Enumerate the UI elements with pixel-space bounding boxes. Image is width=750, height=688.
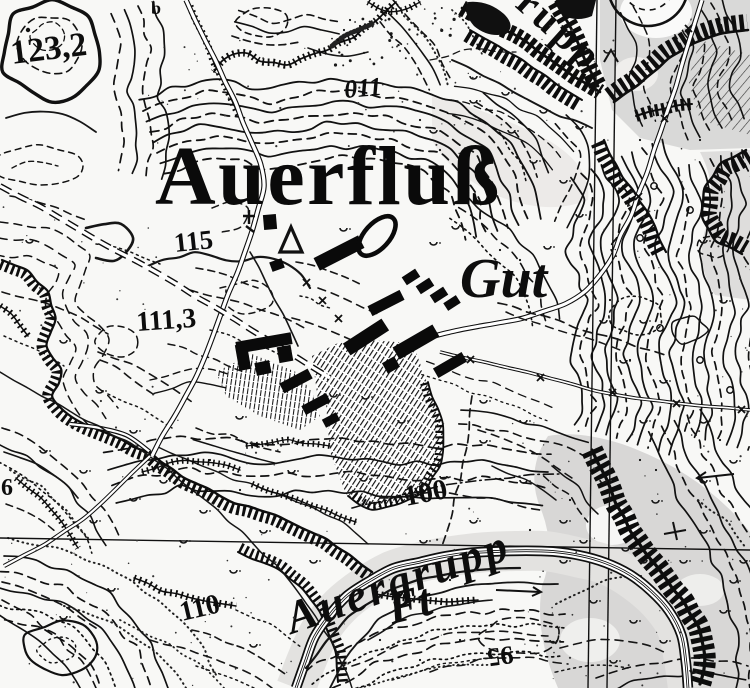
- svg-text:Auerfluß: Auerfluß: [155, 130, 502, 223]
- svg-text:115: 115: [172, 224, 214, 258]
- svg-text:011: 011: [343, 72, 383, 104]
- svg-text:111,3: 111,3: [135, 303, 197, 338]
- svg-text:Gut: Gut: [460, 248, 549, 310]
- svg-text:95: 95: [485, 640, 515, 672]
- svg-text:6: 6: [1, 475, 13, 501]
- svg-text:b: b: [151, 0, 161, 18]
